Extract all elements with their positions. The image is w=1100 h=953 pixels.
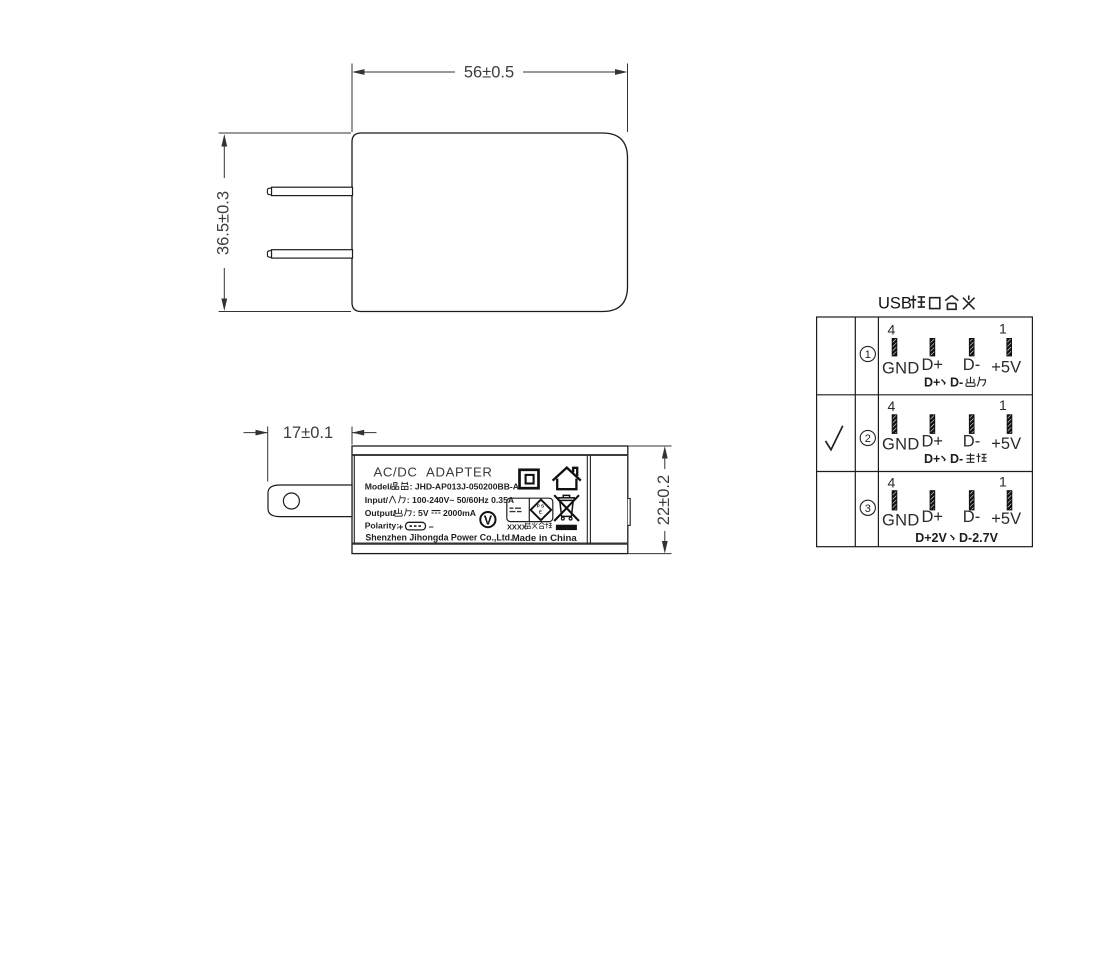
svg-text:Made in China: Made in China <box>512 533 578 544</box>
svg-text:D-: D- <box>963 356 980 374</box>
svg-text:2000mA: 2000mA <box>443 508 476 518</box>
svg-text:17±0.1: 17±0.1 <box>283 424 333 442</box>
svg-text:Model/: Model/ <box>365 482 393 492</box>
svg-text:1: 1 <box>865 349 871 361</box>
svg-text:+: + <box>398 522 403 532</box>
svg-text:22±0.2: 22±0.2 <box>655 475 673 525</box>
svg-text:D-: D- <box>963 433 980 451</box>
svg-text:V: V <box>484 513 493 527</box>
svg-text:D+: D+ <box>922 508 944 526</box>
svg-text:GND: GND <box>882 435 920 453</box>
svg-text:4: 4 <box>888 398 896 414</box>
svg-text:XXXX: XXXX <box>507 522 527 531</box>
svg-text:D+: D+ <box>924 376 940 390</box>
svg-text:Polarity:: Polarity: <box>365 521 400 531</box>
svg-text:−: − <box>429 522 434 532</box>
svg-text:4: 4 <box>888 474 896 490</box>
svg-text:D+: D+ <box>922 433 944 451</box>
svg-text:36.5±0.3: 36.5±0.3 <box>215 191 233 255</box>
svg-text:D-: D- <box>950 452 963 466</box>
svg-text:E: E <box>539 509 542 514</box>
svg-text:1: 1 <box>999 473 1007 489</box>
svg-text:: JHD-AP013J-050200BB-A: : JHD-AP013J-050200BB-A <box>410 482 519 492</box>
svg-text:+5V: +5V <box>991 359 1021 377</box>
svg-text:3: 3 <box>865 503 871 515</box>
svg-text:D+2V: D+2V <box>915 531 947 545</box>
svg-text:2: 2 <box>865 433 871 445</box>
svg-text:1: 1 <box>999 397 1007 413</box>
svg-text:GND: GND <box>882 359 920 377</box>
svg-text:GND: GND <box>882 511 920 529</box>
svg-text:+5V: +5V <box>991 435 1021 453</box>
svg-text:AC/DC ADAPTER: AC/DC ADAPTER <box>374 465 493 480</box>
svg-text:USB: USB <box>878 295 912 313</box>
svg-text:Shenzhen Jihongda Power Co.,Lt: Shenzhen Jihongda Power Co.,Ltd. <box>365 533 512 543</box>
svg-text:Input/: Input/ <box>365 495 389 505</box>
svg-text:56±0.5: 56±0.5 <box>464 64 514 82</box>
svg-text:D-: D- <box>963 508 980 526</box>
svg-text:: 5V: : 5V <box>413 508 429 518</box>
svg-text:P S: P S <box>537 504 544 509</box>
svg-text:D+: D+ <box>922 356 944 374</box>
svg-text:D-: D- <box>950 376 963 390</box>
svg-text:4: 4 <box>888 322 896 338</box>
svg-text:D+: D+ <box>924 452 940 466</box>
svg-text:: 100-240V~ 50/60Hz 0.35A: : 100-240V~ 50/60Hz 0.35A <box>407 495 514 505</box>
svg-text:D-2.7V: D-2.7V <box>959 531 999 545</box>
svg-text:1: 1 <box>999 321 1007 337</box>
svg-text:+5V: +5V <box>991 510 1021 528</box>
svg-text:Output/: Output/ <box>365 508 396 518</box>
